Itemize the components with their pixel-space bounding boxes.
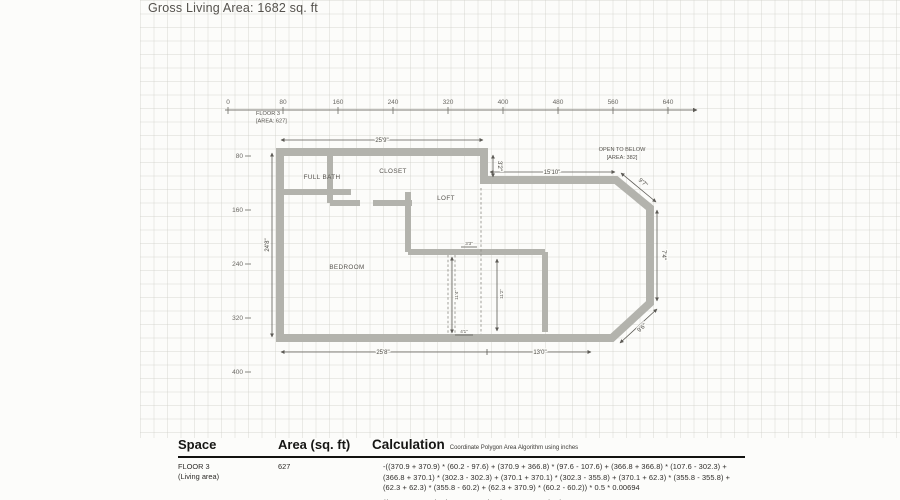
gross-living-area-title: Gross Living Area: 1682 sq. ft [148,1,318,15]
column-header-space: Space [178,437,278,452]
dim-top: 25'9" [375,138,388,144]
x-tick-80: 80 [279,99,287,106]
y-tick-160: 160 [232,207,243,214]
y-tick-240: 240 [232,261,243,268]
dim-stair-height-2: 11'2" [499,289,504,299]
area-cell: 627 [278,462,372,471]
space-cell: FLOOR 3 (Living area) [178,462,278,481]
room-label-bedroom: BEDROOM [329,264,364,271]
area-calculation-table: Space Area (sq. ft) Calculation Coordina… [178,437,745,500]
dim-open-below-top: 15'10" [544,170,561,176]
dim-diagonal-bottom: 9'6" [637,323,648,334]
column-header-area: Area (sq. ft) [278,437,372,452]
table-header-rule [178,456,745,458]
dim-bottom-left: 25'8" [376,350,389,356]
dim-stair-bottom: 4'1" [460,329,468,334]
y-tick-320: 320 [232,315,243,322]
vertical-ruler: 80 160 240 320 400 [232,153,251,376]
x-tick-320: 320 [443,99,454,106]
y-tick-400: 400 [232,369,243,376]
room-label-loft: LOFT [437,195,455,202]
floorplan-sketch: 0 80 160 240 320 400 480 560 640 80 160 … [215,88,715,403]
x-tick-400: 400 [498,99,509,106]
open-to-below-label: OPEN TO BELOW [599,147,646,153]
dim-diagonal-top: 9'7" [637,178,648,189]
dim-left: 24'8" [265,238,271,251]
dim-bottom-right: 13'0" [533,350,546,356]
room-label-full-bath: FULL BATH [304,174,341,181]
table-header-row: Space Area (sq. ft) Calculation Coordina… [178,437,745,454]
floor-area-label: [AREA: 627] [256,119,287,125]
x-tick-160: 160 [333,99,344,106]
column-header-calculation: Calculation [372,437,445,452]
horizontal-ruler: 0 80 160 240 320 400 480 560 640 [225,99,697,114]
y-tick-80: 80 [236,153,244,160]
x-tick-480: 480 [553,99,564,106]
space-subname: (Living area) [178,472,278,482]
floor-label: FLOOR 3 [256,111,280,117]
calculation-method-note: Coordinate Polygon Area Algorithm using … [450,445,578,451]
stair-dashed-lines [448,188,481,335]
scanned-sketch-page: Gross Living Area: 1682 sq. ft 0 80 160 … [0,0,900,500]
calculation-cell: -((370.9 + 370.9) * (60.2 - 97.6) + (370… [383,462,745,494]
dim-right: 7'4" [660,250,666,260]
open-to-below-area: [AREA: 382] [607,155,638,161]
dim-stair-width: 3'3" [465,241,473,246]
table-row-floor3: FLOOR 3 (Living area) 627 -((370.9 + 370… [178,462,745,494]
dim-stair-height-1: 11'4" [454,290,459,300]
room-label-closet: CLOSET [379,168,407,175]
x-tick-560: 560 [608,99,619,106]
space-name: FLOOR 3 [178,462,278,472]
x-tick-240: 240 [388,99,399,106]
x-tick-0: 0 [226,99,230,106]
x-tick-640: 640 [663,99,674,106]
dim-step: 3'2" [496,161,502,171]
